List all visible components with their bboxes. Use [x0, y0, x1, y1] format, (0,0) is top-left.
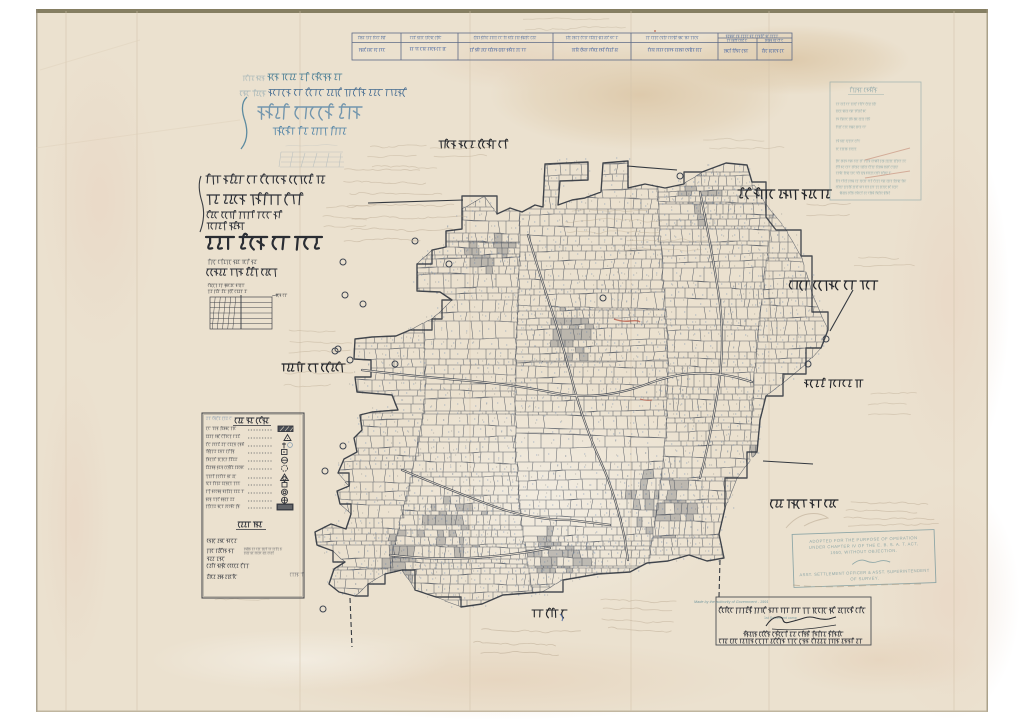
svg-text:Made by the authority of Gover: Made by the authority of Government - 19… [694, 600, 769, 604]
svg-text:OF SURVEY.: OF SURVEY. [850, 575, 879, 581]
